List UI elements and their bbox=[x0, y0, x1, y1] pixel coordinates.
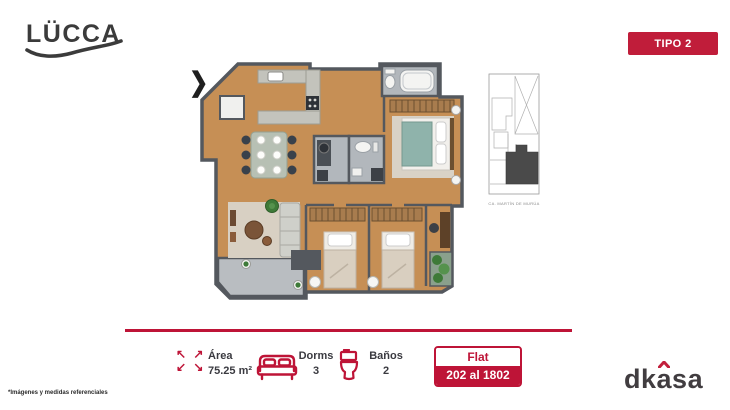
entry-closet bbox=[220, 96, 244, 119]
dkasa-logo: dkasa bbox=[624, 366, 703, 393]
brand-part-pre: dk bbox=[624, 364, 657, 394]
brand-part-accent: a bbox=[657, 364, 673, 394]
living-room bbox=[228, 200, 300, 259]
main-bedroom bbox=[384, 96, 461, 185]
dorms-label: Dorms bbox=[294, 350, 338, 362]
lucca-logo: LÜCCA bbox=[24, 12, 136, 64]
flat-range: 202 al 1802 bbox=[436, 366, 520, 385]
brand-part-post: sa bbox=[672, 364, 703, 394]
tipo-badge: TIPO 2 bbox=[628, 32, 718, 55]
bathroom-3 bbox=[349, 136, 384, 183]
expand-arrows-icon: ↖ ↗↙ ↘ bbox=[176, 348, 204, 378]
disclaimer-footnote: *Imágenes y medidas referenciales bbox=[8, 390, 108, 396]
location-key-map bbox=[482, 72, 546, 200]
area-info: Área 75.25 m² bbox=[208, 350, 252, 377]
dining-table bbox=[242, 132, 297, 178]
banos-label: Baños bbox=[364, 350, 408, 362]
bathroom-main bbox=[382, 66, 438, 96]
dorms-info: Dorms 3 bbox=[294, 350, 338, 377]
expand-arrows-bottom: ↙ ↘ bbox=[176, 360, 205, 374]
flat-badge: Flat 202 al 1802 bbox=[434, 346, 522, 387]
floor-plan-graphic bbox=[194, 60, 466, 320]
area-value: 75.25 m² bbox=[208, 365, 252, 377]
banos-info: Baños 2 bbox=[364, 350, 408, 377]
banos-value: 2 bbox=[364, 365, 408, 377]
area-label: Área bbox=[208, 350, 252, 362]
double-bed-icon bbox=[256, 351, 298, 381]
flat-label: Flat bbox=[436, 348, 520, 366]
expand-arrows-top: ↖ ↗ bbox=[176, 347, 205, 361]
bathroom-2 bbox=[314, 136, 349, 183]
toilet-icon bbox=[338, 349, 360, 382]
roof-accent-icon bbox=[658, 361, 670, 368]
dorms-value: 3 bbox=[294, 365, 338, 377]
map-street-caption: CA. MARTÍN DE MURÚA bbox=[478, 201, 550, 206]
accent-divider-line bbox=[125, 329, 572, 332]
